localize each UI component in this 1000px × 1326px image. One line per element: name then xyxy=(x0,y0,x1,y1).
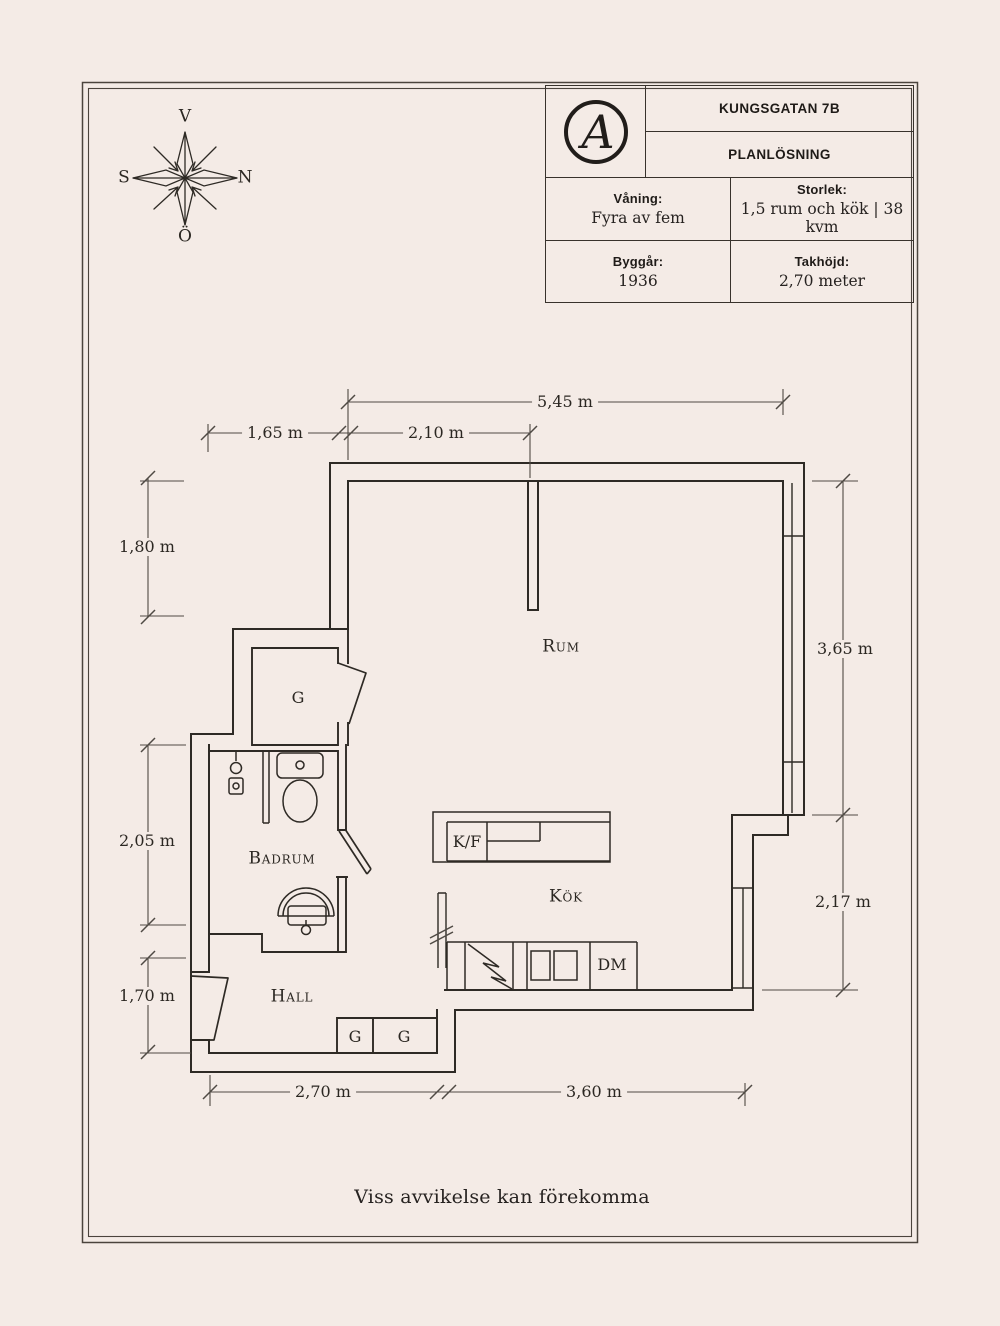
interior-walls xyxy=(209,629,437,1053)
windows xyxy=(438,483,804,988)
dim-left-middle: 2,05 m xyxy=(114,832,180,850)
room-label-hall: Hall xyxy=(271,989,314,1006)
fridge-freezer-label: K/F xyxy=(453,834,481,850)
burner-left xyxy=(531,951,550,980)
field-size-label: Storlek: xyxy=(797,182,847,197)
dim-top-total: 5,45 m xyxy=(532,393,598,411)
dim-right-lower: 2,17 m xyxy=(810,893,876,911)
dishwasher-label: DM xyxy=(597,957,626,973)
field-floor: Våning: Fyra av fem xyxy=(546,177,731,240)
field-build-year: Byggår: 1936 xyxy=(546,240,731,302)
bathroom-fixtures xyxy=(229,751,334,935)
burner-right xyxy=(554,951,577,980)
dim-left-lower: 1,70 m xyxy=(114,987,180,1005)
field-ceiling-height: Takhöjd: 2,70 meter xyxy=(731,240,913,302)
dim-top-left: 1,65 m xyxy=(242,424,308,442)
address-title: KUNGSGATAN 7B xyxy=(719,101,840,116)
floor-plan-page: V N S Ö A KUNGSGATAN 7B PLANLÖSNING Våni… xyxy=(0,0,1000,1326)
room-label-rum: Rum xyxy=(542,639,580,656)
field-ceiling-height-label: Takhöjd: xyxy=(795,254,850,269)
field-build-year-label: Byggår: xyxy=(613,254,664,269)
sink-icon xyxy=(278,888,334,935)
compass-right-label: N xyxy=(238,170,253,187)
shower-partition xyxy=(263,751,269,823)
footer-disclaimer: Viss avvikelse kan förekomma xyxy=(354,1186,650,1208)
toilet-icon xyxy=(277,753,323,822)
dim-bottom-right: 3,60 m xyxy=(561,1083,627,1101)
field-size: Storlek: 1,5 rum och kök | 38 kvm xyxy=(731,177,913,240)
field-size-value: 1,5 rum och kök | 38 kvm xyxy=(731,200,913,236)
wardrobe-label-1: G xyxy=(292,690,305,706)
monogram-letter: A xyxy=(577,105,614,159)
field-floor-value: Fyra av fem xyxy=(591,209,685,227)
dimension-lines xyxy=(140,389,858,1106)
compass-left-label: S xyxy=(118,170,130,187)
wardrobe-label-2: G xyxy=(349,1029,362,1045)
wardrobe-label-3: G xyxy=(398,1029,411,1045)
compass-rose-icon xyxy=(133,132,237,225)
dim-right-upper: 3,65 m xyxy=(812,640,878,658)
dim-top-mid: 2,10 m xyxy=(403,424,469,442)
dim-bottom-left: 2,70 m xyxy=(290,1083,356,1101)
field-ceiling-height-value: 2,70 meter xyxy=(779,272,865,290)
stove-lightning-icon xyxy=(468,944,512,989)
room-label-badrum: Badrum xyxy=(248,851,315,868)
title-block: A KUNGSGATAN 7B PLANLÖSNING Våning: Fyra… xyxy=(545,85,914,303)
dim-left-upper: 1,80 m xyxy=(114,538,180,556)
monogram-logo-icon: A xyxy=(561,97,631,167)
field-floor-label: Våning: xyxy=(613,191,662,206)
field-build-year-value: 1936 xyxy=(618,272,657,290)
logo: A xyxy=(546,86,646,177)
room-label-kok: Kök xyxy=(549,889,583,906)
compass-top-label: V xyxy=(179,109,191,126)
compass-bottom-label: Ö xyxy=(178,229,192,246)
drawing-type-title: PLANLÖSNING xyxy=(728,147,831,162)
